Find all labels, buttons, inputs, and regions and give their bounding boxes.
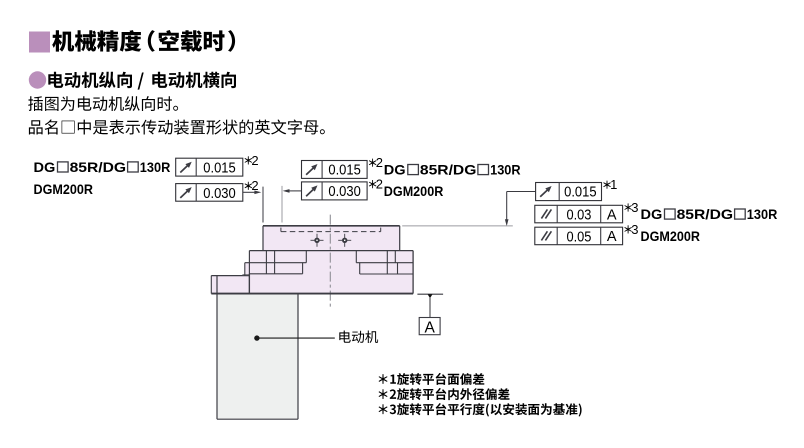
svg-text:2: 2 — [251, 153, 258, 168]
svg-text:130R: 130R — [490, 161, 520, 177]
svg-text:DG: DG — [34, 159, 56, 175]
svg-text:0.015: 0.015 — [564, 184, 596, 201]
svg-text:85R/DG: 85R/DG — [677, 206, 734, 222]
svg-text:A: A — [607, 229, 617, 245]
svg-text:0.015: 0.015 — [203, 159, 235, 176]
svg-text:1: 1 — [610, 177, 617, 192]
svg-text:2: 2 — [376, 155, 383, 170]
svg-text:85R/DG: 85R/DG — [70, 159, 127, 175]
svg-text:0.030: 0.030 — [203, 185, 235, 202]
svg-text:85R/DG: 85R/DG — [420, 161, 477, 177]
svg-text:DGM200R: DGM200R — [34, 181, 94, 197]
svg-text:DG: DG — [641, 206, 663, 222]
svg-text:DGM200R: DGM200R — [384, 183, 444, 199]
svg-text:A: A — [607, 207, 617, 223]
svg-text:DGM200R: DGM200R — [641, 228, 701, 244]
svg-text:0.05: 0.05 — [567, 228, 592, 245]
svg-text:0.030: 0.030 — [328, 183, 360, 200]
svg-text:0.015: 0.015 — [328, 162, 360, 179]
svg-text:A: A — [425, 319, 436, 336]
svg-text:3: 3 — [631, 222, 638, 237]
svg-text:2: 2 — [376, 177, 383, 192]
svg-text:0.03: 0.03 — [567, 207, 592, 224]
svg-text:130R: 130R — [140, 159, 171, 175]
svg-text:3: 3 — [631, 200, 638, 215]
svg-text:130R: 130R — [747, 206, 778, 222]
svg-text:DG: DG — [384, 161, 406, 177]
